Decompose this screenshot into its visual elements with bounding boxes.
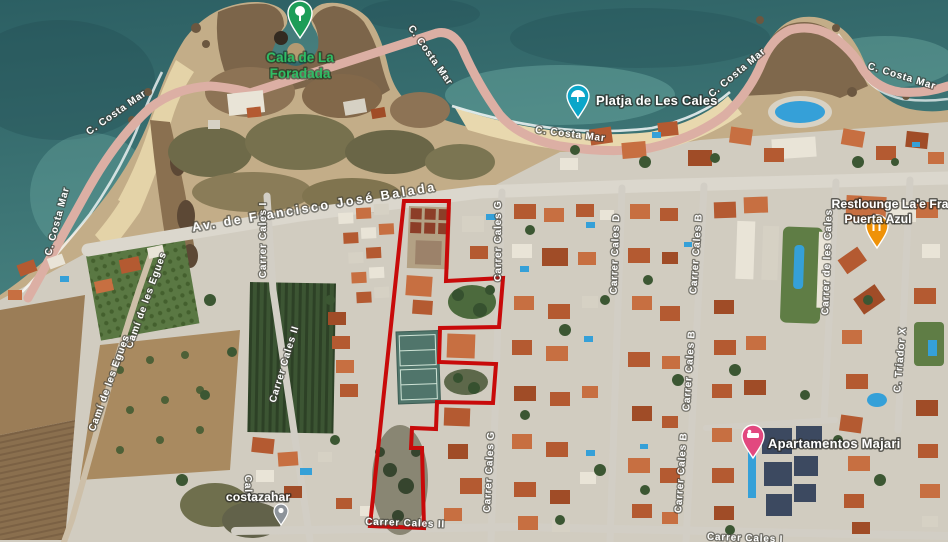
street-label-cales-g: Carrer Cales G <box>493 200 504 281</box>
restlounge-label-line1: Restlounge La'e Fra <box>831 197 948 211</box>
apartamentos-label: Apartamentos Majari <box>768 436 900 451</box>
costazahar-label: costazahar <box>226 490 290 504</box>
street-label-cales-i: Carrer Cales I <box>707 532 784 542</box>
restlounge-label-line2: Puerta Azul <box>844 212 911 226</box>
cala-label-line2: Foradada <box>270 66 331 81</box>
street-label-cales-i: Carrer Cales I <box>258 202 269 278</box>
platja-label: Platja de Les Cales <box>596 93 718 108</box>
cala-label-line1: Cala de La <box>266 50 334 65</box>
satellite-map-canvas[interactable]: C. Costa Mar C. Costa Mar C. Costa Mar C… <box>0 0 948 542</box>
